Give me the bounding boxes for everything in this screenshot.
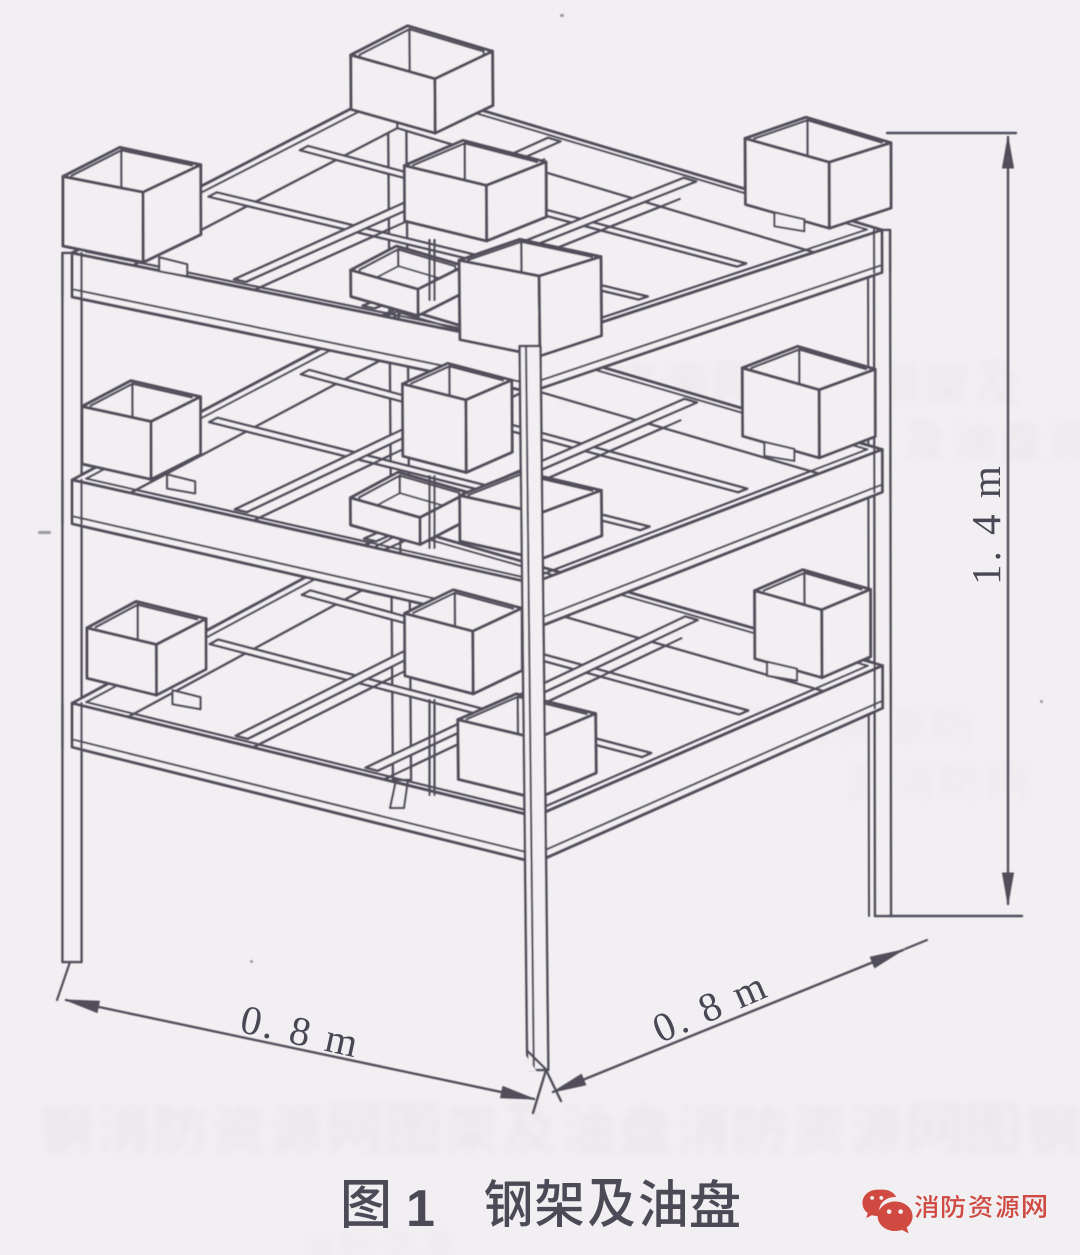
- svg-text:1: 1: [406, 1180, 435, 1238]
- svg-text:1. 4 m: 1. 4 m: [963, 463, 1009, 585]
